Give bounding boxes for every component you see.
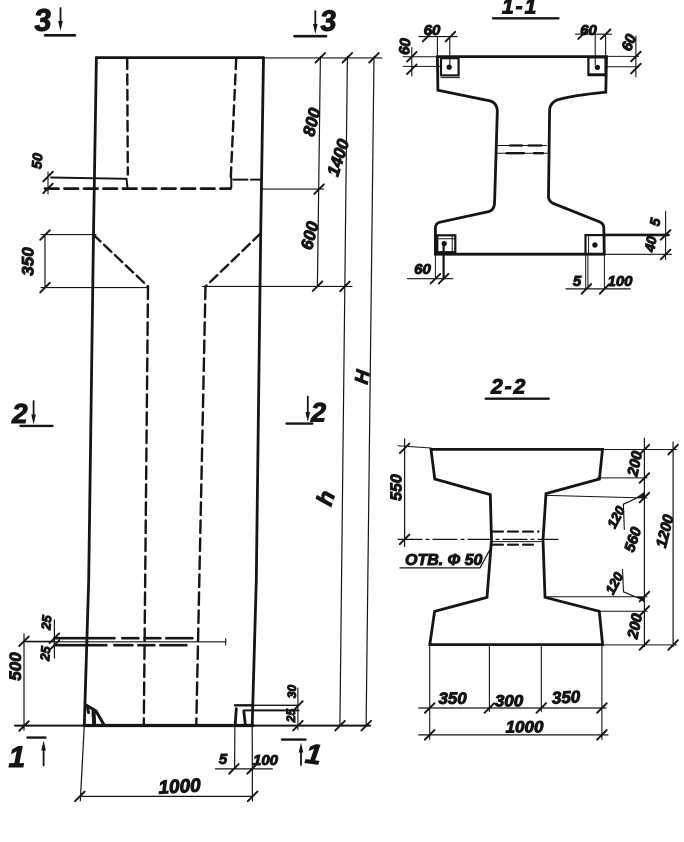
svg-text:350: 350 (18, 247, 37, 276)
svg-text:560: 560 (621, 525, 645, 555)
svg-text:5: 5 (219, 751, 228, 768)
svg-text:30: 30 (285, 685, 299, 699)
svg-text:300: 300 (495, 692, 524, 711)
svg-text:h: h (311, 487, 340, 508)
svg-text:ОТВ. Ф 50: ОТВ. Ф 50 (405, 552, 483, 569)
svg-text:2: 2 (310, 398, 326, 428)
svg-text:2-2: 2-2 (490, 376, 527, 399)
svg-text:1: 1 (304, 738, 324, 771)
svg-text:100: 100 (253, 752, 279, 769)
svg-text:350: 350 (551, 687, 581, 707)
svg-text:500: 500 (6, 652, 25, 681)
svg-text:5: 5 (646, 217, 663, 228)
svg-text:1400: 1400 (324, 136, 354, 178)
svg-text:3: 3 (33, 2, 53, 38)
svg-text:25: 25 (38, 614, 54, 631)
svg-text:200: 200 (624, 612, 646, 642)
svg-text:200: 200 (624, 449, 646, 479)
svg-text:350: 350 (438, 689, 467, 708)
svg-text:60: 60 (414, 261, 431, 278)
svg-text:3: 3 (319, 5, 338, 38)
svg-text:1200: 1200 (653, 512, 678, 549)
svg-text:40: 40 (641, 235, 660, 254)
svg-text:1: 1 (9, 741, 26, 774)
svg-text:2: 2 (11, 398, 28, 429)
svg-text:H: H (352, 367, 375, 385)
svg-text:1000: 1000 (158, 775, 202, 798)
svg-text:60: 60 (618, 31, 640, 53)
svg-text:5: 5 (573, 273, 582, 290)
svg-text:1-1: 1-1 (502, 0, 538, 19)
svg-text:100: 100 (607, 273, 633, 290)
svg-text:800: 800 (299, 106, 324, 139)
svg-text:50: 50 (28, 152, 45, 169)
svg-text:600: 600 (297, 219, 322, 252)
svg-text:550: 550 (389, 474, 406, 501)
svg-text:1000: 1000 (506, 718, 544, 737)
svg-text:25: 25 (284, 709, 298, 724)
svg-text:25: 25 (37, 645, 53, 662)
